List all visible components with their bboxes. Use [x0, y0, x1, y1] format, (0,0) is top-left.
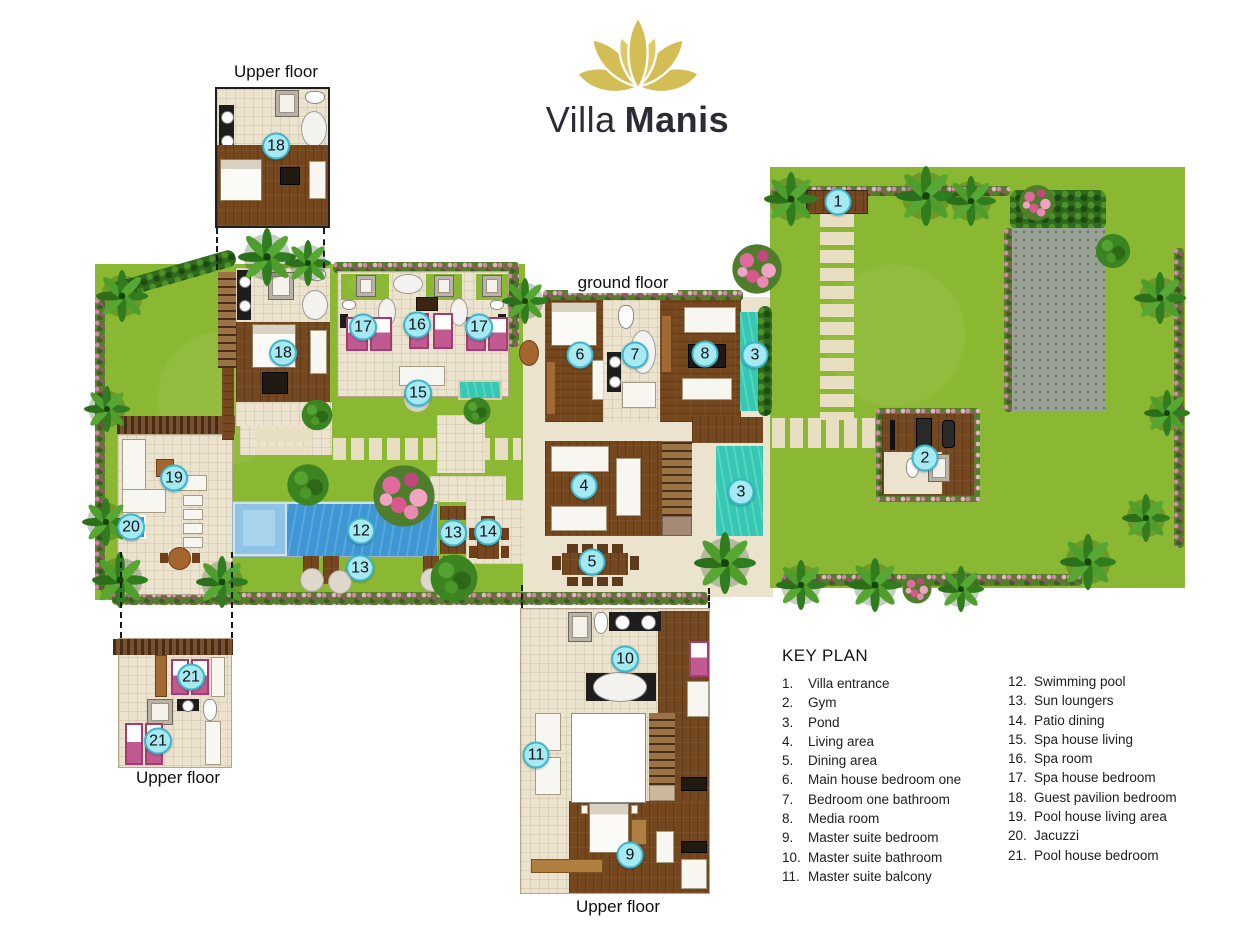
sofa [551, 506, 607, 531]
umbrella-icon [300, 568, 324, 592]
bathtub [593, 672, 647, 702]
chair [501, 546, 509, 558]
sofa [616, 458, 641, 516]
bench [681, 777, 707, 791]
key-plan-item-number: 16. [1008, 749, 1034, 768]
shower [568, 612, 592, 642]
marker-13-sun-loungers-south: 13 [346, 555, 374, 582]
key-plan-item-label: Pool house bedroom [1034, 846, 1159, 865]
chair [183, 523, 203, 534]
key-plan-item: 5.Dining area [782, 751, 1002, 770]
tv-cabinet [280, 167, 300, 185]
palm-tree [1122, 494, 1170, 542]
tv-cabinet [262, 372, 288, 394]
key-plan-item-number: 17. [1008, 768, 1034, 787]
connector-line [708, 588, 710, 608]
toilet-icon [203, 699, 217, 721]
key-plan-item-number: 19. [1008, 807, 1034, 826]
parking-area [1012, 228, 1106, 412]
key-plan-item: 14.Patio dining [1008, 711, 1193, 730]
key-plan-item: 9.Master suite bedroom [782, 828, 1002, 847]
sink-icon [239, 300, 251, 312]
tiled-patch [430, 476, 506, 502]
palm-tree [848, 558, 902, 612]
marker-12-swimming-pool: 12 [347, 518, 375, 545]
pool-house-roof [117, 416, 235, 434]
key-plan-item-number: 8. [782, 809, 808, 828]
palm-tree [84, 386, 130, 432]
nightstand [631, 805, 638, 814]
connector-line [231, 552, 233, 638]
key-plan-item-label: Dining area [808, 751, 877, 770]
chair [552, 556, 561, 570]
key-plan-item: 19.Pool house living area [1008, 807, 1193, 826]
garden-tree [285, 462, 331, 508]
wardrobe [681, 859, 707, 889]
bench [547, 362, 555, 414]
chair [183, 537, 203, 548]
sofa [682, 378, 732, 400]
marker-18-guest-pavilion-bedroom-upper: 18 [262, 133, 290, 160]
key-plan-item: 17.Spa house bedroom [1008, 768, 1193, 787]
pool-step [243, 510, 275, 546]
bed [220, 159, 262, 201]
key-plan-item-number: 10. [782, 848, 808, 867]
wardrobe [309, 161, 326, 199]
key-plan-item-number: 21. [1008, 846, 1034, 865]
chair [501, 528, 509, 540]
marker-17-spa-house-bedroom-west: 17 [349, 314, 377, 341]
key-plan-item-number: 6. [782, 770, 808, 789]
bougainvillea-bush [728, 240, 786, 298]
toilet-icon [342, 300, 356, 310]
key-plan-item-number: 1. [782, 674, 808, 693]
key-plan-item-number: 5. [782, 751, 808, 770]
massage-table [433, 313, 453, 349]
chair [582, 577, 593, 586]
staircase [649, 713, 675, 785]
toilet-icon [594, 612, 608, 634]
key-plan-item: 4.Living area [782, 732, 1002, 751]
key-plan-item-label: Master suite bedroom [808, 828, 939, 847]
connector-line [216, 228, 218, 270]
garden-tree [462, 396, 492, 426]
round-table [519, 340, 539, 366]
key-plan-heading: KEY PLAN [782, 646, 868, 666]
key-plan-item-number: 2. [782, 693, 808, 712]
toilet-icon [305, 91, 325, 104]
key-plan-item-number: 12. [1008, 672, 1034, 691]
tv-console [531, 859, 603, 873]
label-upper-floor-guest: Upper floor [216, 62, 336, 82]
pool-house-roof [113, 639, 233, 655]
bench [662, 316, 671, 372]
marker-3-pond-upper: 3 [742, 342, 769, 369]
label-ground-floor: ground floor [568, 273, 678, 293]
sink-icon [609, 356, 621, 368]
sink-icon [615, 615, 630, 630]
key-plan-item: 20.Jacuzzi [1008, 826, 1193, 845]
title-bold: Manis [625, 99, 730, 140]
bougainvillea-bush [1016, 182, 1058, 224]
palm-tree [1060, 534, 1116, 590]
round-table [168, 547, 191, 570]
marker-16-spa-room: 16 [403, 312, 431, 339]
wardrobe [310, 330, 327, 374]
key-plan-item-label: Living area [808, 732, 874, 751]
outdoor-shower [482, 275, 502, 297]
shower [275, 90, 299, 117]
palm-tree [694, 532, 756, 594]
key-plan-item-label: Master suite bathroom [808, 848, 942, 867]
key-plan-item-label: Gym [808, 693, 837, 712]
sofa [551, 446, 609, 472]
marker-14-patio-dining: 14 [474, 519, 502, 546]
key-plan-item-number: 14. [1008, 711, 1034, 730]
stair-landing [662, 516, 692, 536]
key-plan-item-label: Guest pavilion bedroom [1034, 788, 1177, 807]
key-plan-item: 6.Main house bedroom one [782, 770, 1002, 789]
pavilion-walkway [222, 368, 234, 440]
shower [622, 382, 656, 408]
connector-line [323, 228, 325, 268]
sun-lounger [440, 506, 466, 520]
key-plan-item-number: 9. [782, 828, 808, 847]
nightstand [581, 805, 588, 814]
key-plan-item-number: 7. [782, 790, 808, 809]
key-plan-item: 12.Swimming pool [1008, 672, 1193, 691]
staircase [662, 441, 692, 516]
key-plan-item: 2.Gym [782, 693, 1002, 712]
chair [630, 556, 639, 570]
outdoor-shower [356, 275, 376, 297]
marker-1-villa-entrance: 1 [825, 189, 852, 216]
palm-tree [1144, 390, 1190, 436]
chair [612, 544, 623, 553]
key-plan-item-label: Spa room [1034, 749, 1093, 768]
key-plan-item-number: 18. [1008, 788, 1034, 807]
title-light: Villa [546, 99, 616, 140]
chair [567, 577, 578, 586]
sofa [684, 307, 736, 333]
floor-plan-canvas: VillaManis Upper floor [0, 0, 1250, 952]
wardrobe [211, 657, 225, 697]
bougainvillea-bush [368, 460, 440, 532]
lotus-logo-icon [563, 4, 713, 102]
key-plan-item-number: 20. [1008, 826, 1034, 845]
palm-tree [1134, 272, 1186, 324]
key-plan-item: 7.Bedroom one bathroom [782, 790, 1002, 809]
key-plan-item-label: Spa house living [1034, 730, 1133, 749]
sink-icon [221, 111, 234, 124]
stair-landing [649, 785, 675, 801]
key-plan-item-label: Sun loungers [1034, 691, 1114, 710]
bathtub [301, 111, 327, 147]
page-title: VillaManis [470, 100, 805, 140]
marker-8-media-room: 8 [692, 341, 719, 368]
marker-4-living-area: 4 [571, 473, 598, 500]
outdoor-shower [434, 275, 454, 297]
key-plan-item-label: Spa house bedroom [1034, 768, 1156, 787]
key-plan-item-label: Media room [808, 809, 879, 828]
connector-line [120, 552, 122, 638]
bed [551, 302, 597, 346]
key-plan-col2: 12.Swimming pool13.Sun loungers14.Patio … [1008, 672, 1193, 865]
label-upper-floor-pool: Upper floor [118, 768, 238, 788]
chair [183, 509, 203, 520]
sink-icon [641, 615, 656, 630]
marker-10-master-suite-bathroom: 10 [611, 646, 639, 673]
key-plan-item: 18.Guest pavilion bedroom [1008, 788, 1193, 807]
pool-house-upper-floor [118, 638, 232, 768]
palm-tree [776, 560, 826, 610]
wood-walkway [692, 417, 763, 443]
toilet-icon [618, 305, 634, 329]
key-plan-item: 1.Villa entrance [782, 674, 1002, 693]
key-plan-item: 16.Spa room [1008, 749, 1193, 768]
key-plan-item-label: Pool house living area [1034, 807, 1167, 826]
connector-line [521, 585, 523, 608]
gym-machine [942, 420, 955, 448]
chair [160, 553, 168, 563]
bougainvillea-bush [900, 572, 934, 606]
twin-bed [125, 723, 143, 765]
key-plan-item: 11.Master suite balcony [782, 867, 1002, 886]
key-plan-item-label: Master suite balcony [808, 867, 932, 886]
garden-tree [428, 552, 480, 604]
marker-20-jacuzzi: 20 [117, 514, 145, 541]
key-plan-item: 10.Master suite bathroom [782, 848, 1002, 867]
wardrobe [687, 681, 709, 717]
key-plan-item-label: Bedroom one bathroom [808, 790, 950, 809]
marker-18-guest-pavilion-bedroom: 18 [269, 340, 297, 367]
marker-9-master-suite-bedroom: 9 [617, 842, 644, 869]
palm-tree [764, 172, 818, 226]
marker-6-main-house-bedroom-one: 6 [567, 342, 594, 369]
marker-13-sun-loungers-east: 13 [439, 520, 467, 547]
key-plan-item-number: 3. [782, 713, 808, 732]
garden-path [772, 418, 878, 448]
key-plan-item-number: 13. [1008, 691, 1034, 710]
key-plan-item-label: Main house bedroom one [808, 770, 961, 789]
bench [681, 841, 707, 853]
label-upper-floor-master: Upper floor [520, 897, 716, 917]
chair [567, 544, 578, 553]
palm-tree [96, 270, 148, 322]
stepping-path [333, 438, 521, 460]
key-plan-item: 8.Media room [782, 809, 1002, 828]
pavilion-stairs [218, 272, 236, 368]
key-plan-item-number: 15. [1008, 730, 1034, 749]
gym-rack [890, 420, 895, 450]
key-plan-item: 3.Pond [782, 713, 1002, 732]
marker-19-pool-house-living-area: 19 [160, 465, 188, 492]
flower-border [95, 298, 105, 590]
key-plan-item: 21.Pool house bedroom [1008, 846, 1193, 865]
chair [612, 577, 623, 586]
marker-15-spa-house-living: 15 [404, 380, 432, 407]
marker-11-master-suite-balcony: 11 [523, 742, 550, 769]
key-plan-item-number: 4. [782, 732, 808, 751]
key-plan-item: 15.Spa house living [1008, 730, 1193, 749]
chair [597, 577, 608, 586]
sofa [122, 439, 146, 491]
daybed [689, 641, 709, 677]
marker-5-dining-area: 5 [579, 549, 606, 576]
living-area-deck [545, 441, 668, 536]
entrance-path [820, 214, 854, 420]
sink-icon [609, 376, 621, 388]
palm-tree [938, 566, 984, 612]
marker-2-gym: 2 [912, 445, 939, 472]
marker-3-pond-lower: 3 [728, 479, 755, 506]
key-plan-col1: 1.Villa entrance2.Gym3.Pond4.Living area… [782, 674, 1002, 886]
stone-basin [393, 274, 423, 294]
palm-tree [196, 556, 248, 608]
sofa [656, 831, 674, 863]
sink-icon [182, 700, 194, 712]
marker-17-spa-house-bedroom-east: 17 [465, 314, 493, 341]
garden-tree [300, 398, 334, 432]
void-opening [571, 713, 646, 803]
palm-tree [502, 278, 548, 324]
marker-7-bedroom-one-bathroom: 7 [622, 342, 649, 369]
spa-cabinet [416, 297, 438, 311]
marker-21-pool-house-bedroom-b: 21 [144, 728, 172, 755]
key-plan-item: 13.Sun loungers [1008, 691, 1193, 710]
wardrobe [205, 721, 221, 765]
chair [183, 495, 203, 506]
key-plan-item-label: Pond [808, 713, 840, 732]
wood-post [155, 655, 167, 697]
key-plan-item-label: Patio dining [1034, 711, 1105, 730]
key-plan-item-label: Swimming pool [1034, 672, 1126, 691]
palm-tree [946, 176, 996, 226]
key-plan-item-label: Villa entrance [808, 674, 890, 693]
key-plan-item-label: Jacuzzi [1034, 826, 1079, 845]
bathtub [302, 290, 328, 320]
shower [147, 699, 173, 725]
key-plan-item-number: 11. [782, 867, 808, 886]
marker-21-pool-house-bedroom-a: 21 [177, 664, 205, 691]
garden-tree [1094, 232, 1132, 270]
